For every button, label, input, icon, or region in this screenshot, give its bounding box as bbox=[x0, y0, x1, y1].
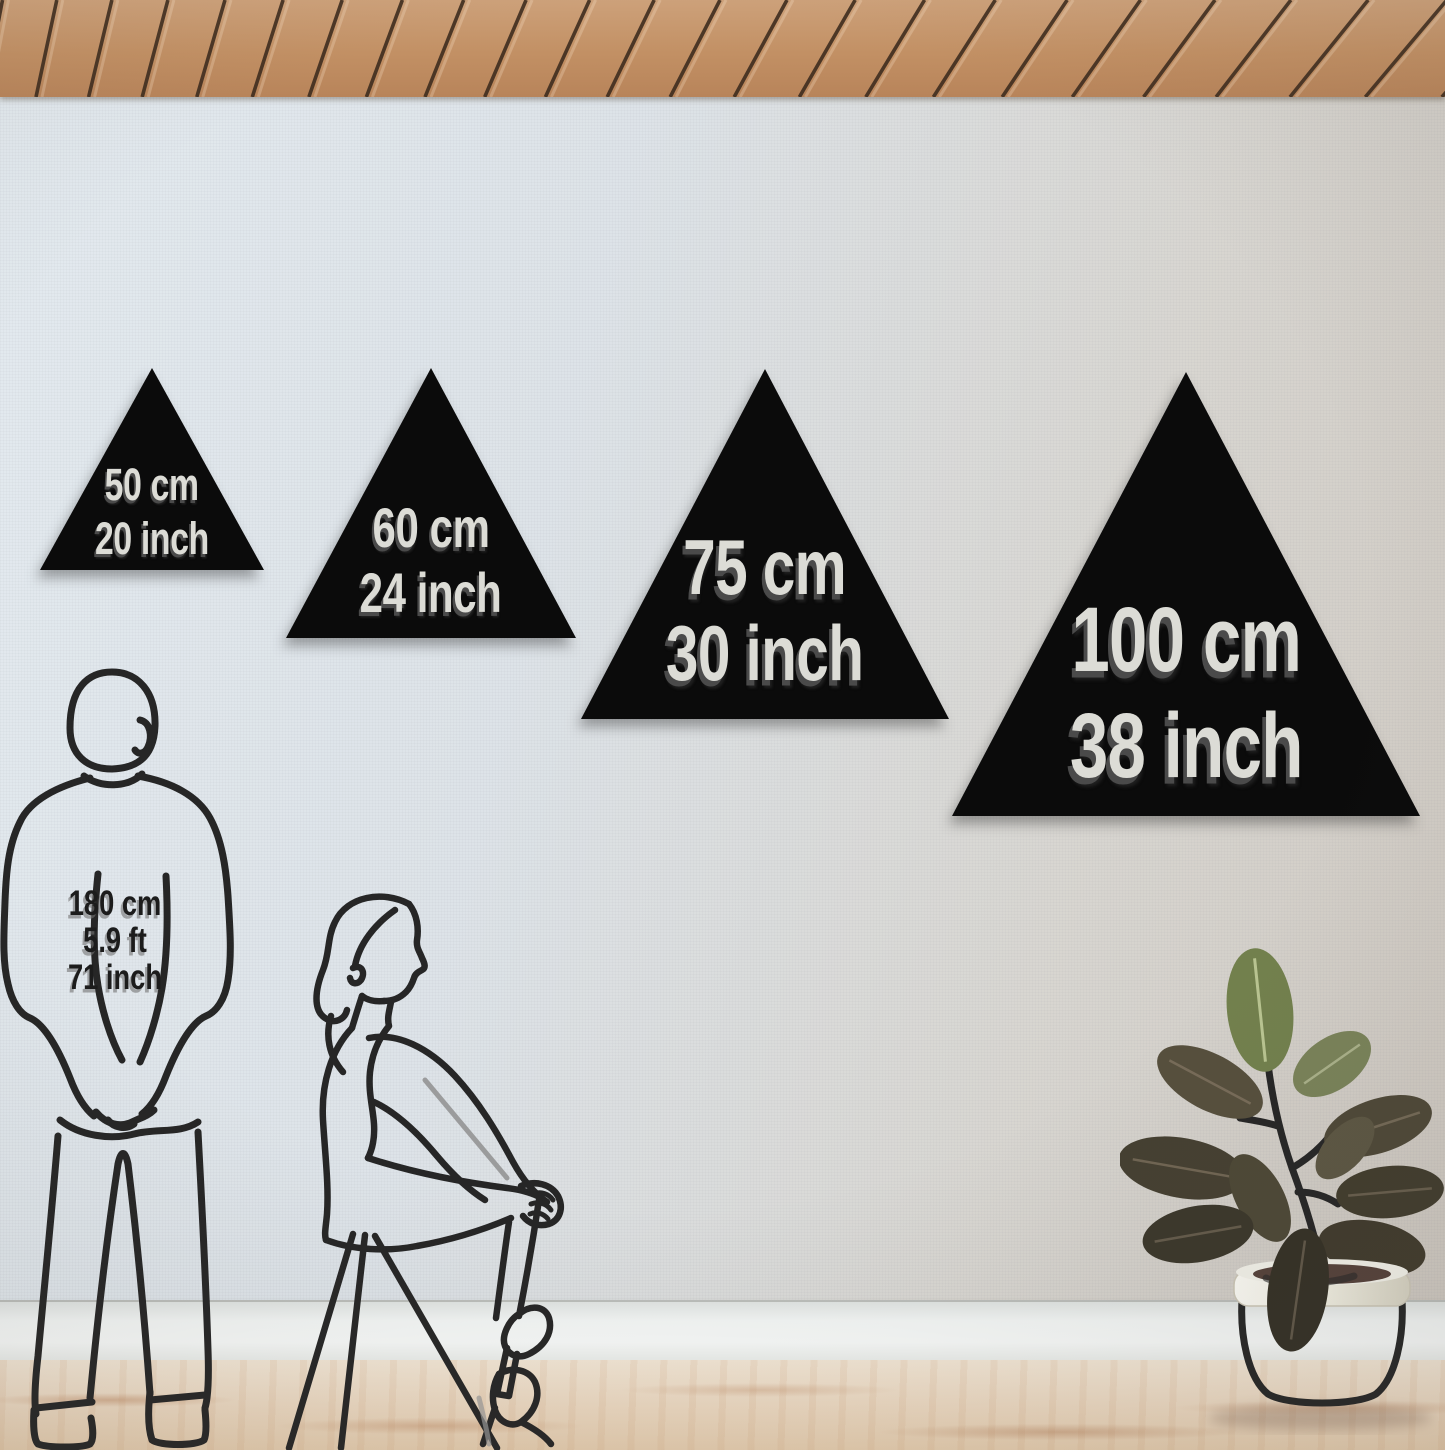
triangle-shape: 100 cm 38 inch bbox=[952, 372, 1420, 816]
wood-slat-ceiling bbox=[0, 0, 1445, 97]
plant-leaves bbox=[1120, 945, 1445, 1284]
height-inch-label: 71 inch bbox=[37, 960, 193, 997]
ceiling-slats-graphic bbox=[0, 0, 1445, 97]
height-ft-label: 5.9 ft bbox=[37, 923, 193, 960]
triangle-cm-label: 60 cm bbox=[373, 496, 490, 561]
triangle-inch-label: 30 inch bbox=[666, 611, 863, 697]
potted-plant-figure bbox=[1120, 930, 1445, 1435]
size-triangle-50cm: 50 cm 20 inch bbox=[40, 368, 264, 566]
triangle-shape: 75 cm 30 inch bbox=[581, 369, 949, 719]
triangle-inch-label: 20 inch bbox=[95, 512, 209, 566]
triangle-shape: 60 cm 24 inch bbox=[286, 368, 576, 638]
triangle-inch-label: 24 inch bbox=[360, 561, 502, 626]
height-cm-label: 180 cm bbox=[37, 886, 193, 923]
size-triangle-60cm: 60 cm 24 inch bbox=[286, 368, 576, 626]
standing-man-figure bbox=[0, 650, 260, 1450]
plant-top-leaf bbox=[1221, 945, 1300, 1075]
triangle-cm-label: 75 cm bbox=[684, 525, 847, 611]
size-triangle-100cm: 100 cm 38 inch bbox=[952, 372, 1420, 800]
triangle-cm-label: 50 cm bbox=[105, 458, 199, 512]
triangle-shape: 50 cm 20 inch bbox=[40, 368, 264, 570]
size-guide-scene: 50 cm 20 inch 60 cm 24 inch 75 cm 30 inc… bbox=[0, 0, 1445, 1450]
size-triangle-75cm: 75 cm 30 inch bbox=[581, 369, 949, 697]
triangle-inch-label: 38 inch bbox=[1070, 693, 1303, 800]
triangle-cm-label: 100 cm bbox=[1071, 587, 1301, 694]
person-height-label: 180 cm 5.9 ft 71 inch bbox=[37, 886, 193, 996]
pot-shadow bbox=[1208, 1406, 1432, 1430]
seated-woman-figure bbox=[283, 888, 613, 1450]
